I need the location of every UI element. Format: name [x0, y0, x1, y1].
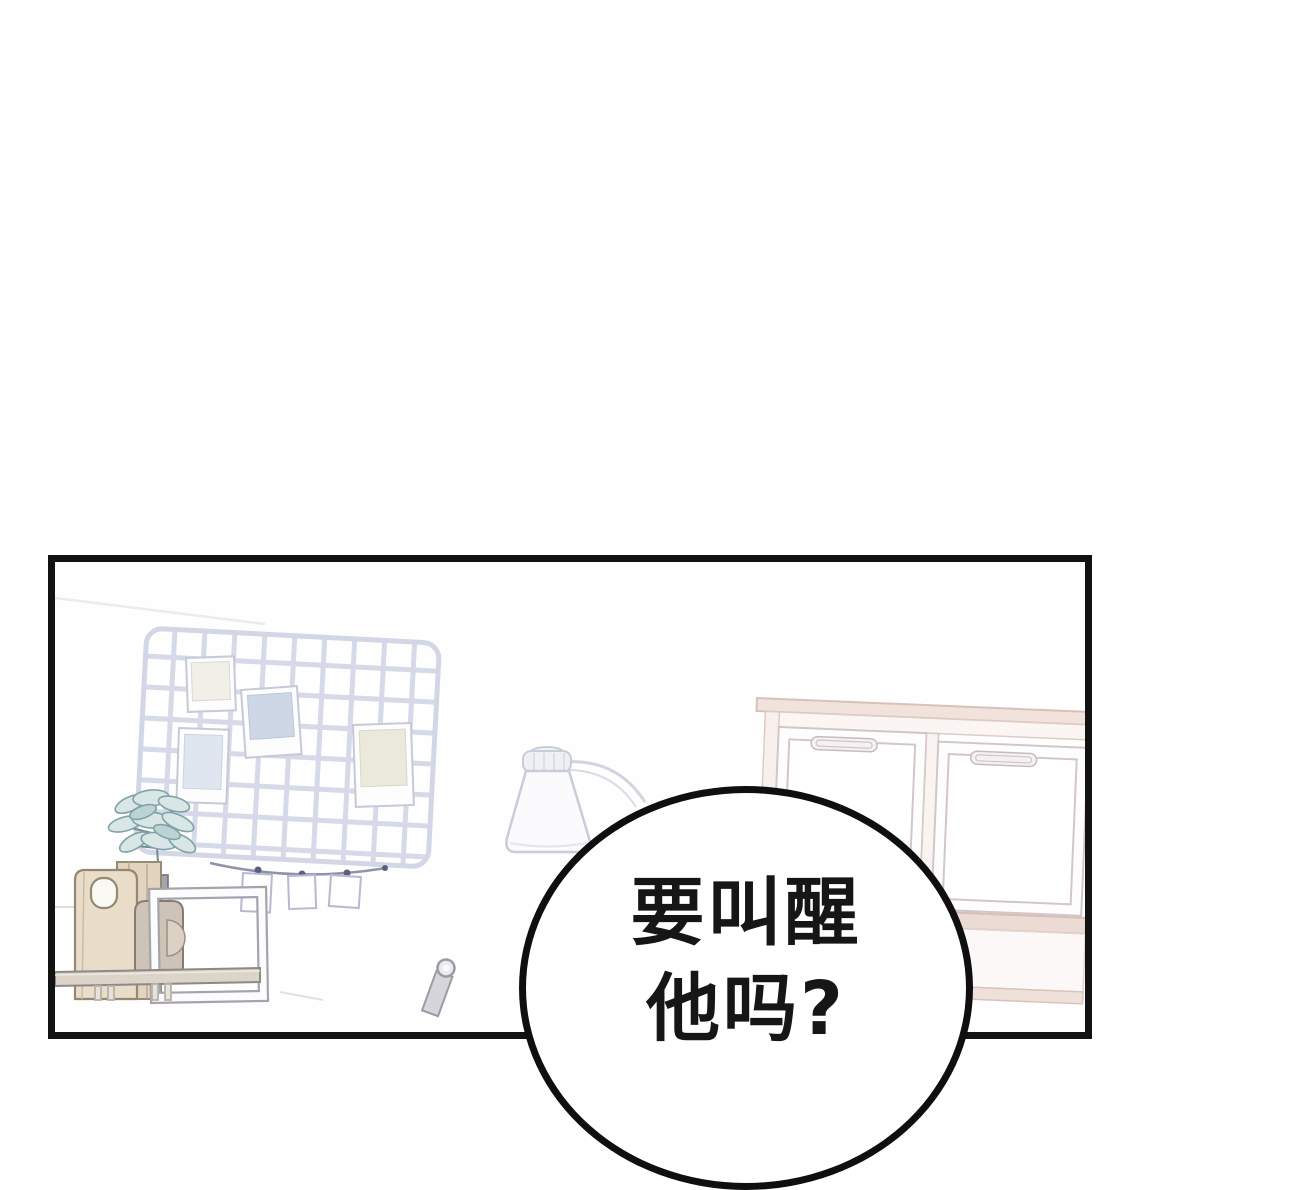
ceiling-line	[55, 598, 265, 624]
photo-frame-3	[176, 728, 229, 804]
speech-bubble: 要叫醒 他吗?	[519, 786, 973, 1190]
photo-frame-4	[353, 723, 414, 807]
photo-frame-1	[186, 656, 236, 712]
hanging-card-3	[329, 875, 361, 908]
lamp-shade	[506, 771, 590, 852]
speech-line-2: 他吗?	[526, 961, 966, 1057]
bag-handle	[91, 878, 117, 908]
window-vent-2	[970, 751, 1036, 767]
speech-line-1: 要叫醒	[526, 865, 966, 961]
photo-frame-2	[241, 686, 302, 758]
floor-line	[280, 992, 323, 1000]
speech-bubble-text: 要叫醒 他吗?	[526, 865, 966, 1057]
manga-page: { "page": { "background": "#ffffff" }, "…	[0, 0, 1300, 997]
chair-rod	[422, 957, 458, 1016]
comic-panel: 要叫醒 他吗?	[48, 555, 1092, 1039]
hanging-card-2	[288, 875, 316, 909]
window-vent-1	[811, 736, 877, 752]
